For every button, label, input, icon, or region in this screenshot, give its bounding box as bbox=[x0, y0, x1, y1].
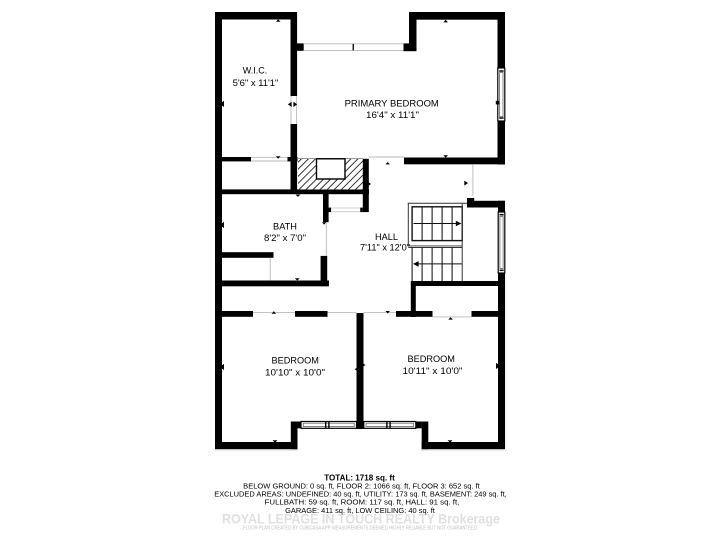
svg-text:10'10" x 10'0": 10'10" x 10'0" bbox=[265, 366, 325, 377]
svg-text:8'2" x 7'0": 8'2" x 7'0" bbox=[264, 232, 306, 243]
svg-text:7'11" x 12'0": 7'11" x 12'0" bbox=[360, 241, 410, 252]
svg-text:5'6" x 11'1": 5'6" x 11'1" bbox=[233, 77, 279, 88]
svg-text:16'4" x 11'1": 16'4" x 11'1" bbox=[366, 109, 419, 120]
svg-text:FLOOR PLAN CREATED BY CUBICASA: FLOOR PLAN CREATED BY CUBICASA APP. MEAS… bbox=[243, 525, 478, 531]
svg-text:W.I.C.: W.I.C. bbox=[243, 64, 268, 75]
svg-text:HALL: HALL bbox=[375, 231, 398, 242]
svg-text:GARAGE: 411 sq. ft, LOW CEILIN: GARAGE: 411 sq. ft, LOW CEILING: 40 sq. … bbox=[285, 506, 435, 515]
svg-text:BATH: BATH bbox=[273, 220, 297, 231]
svg-text:10'11" x 10'0": 10'11" x 10'0" bbox=[403, 365, 463, 376]
svg-text:BEDROOM: BEDROOM bbox=[271, 354, 319, 365]
svg-text:BEDROOM: BEDROOM bbox=[407, 353, 455, 364]
svg-text:PRIMARY BEDROOM: PRIMARY BEDROOM bbox=[345, 97, 439, 108]
